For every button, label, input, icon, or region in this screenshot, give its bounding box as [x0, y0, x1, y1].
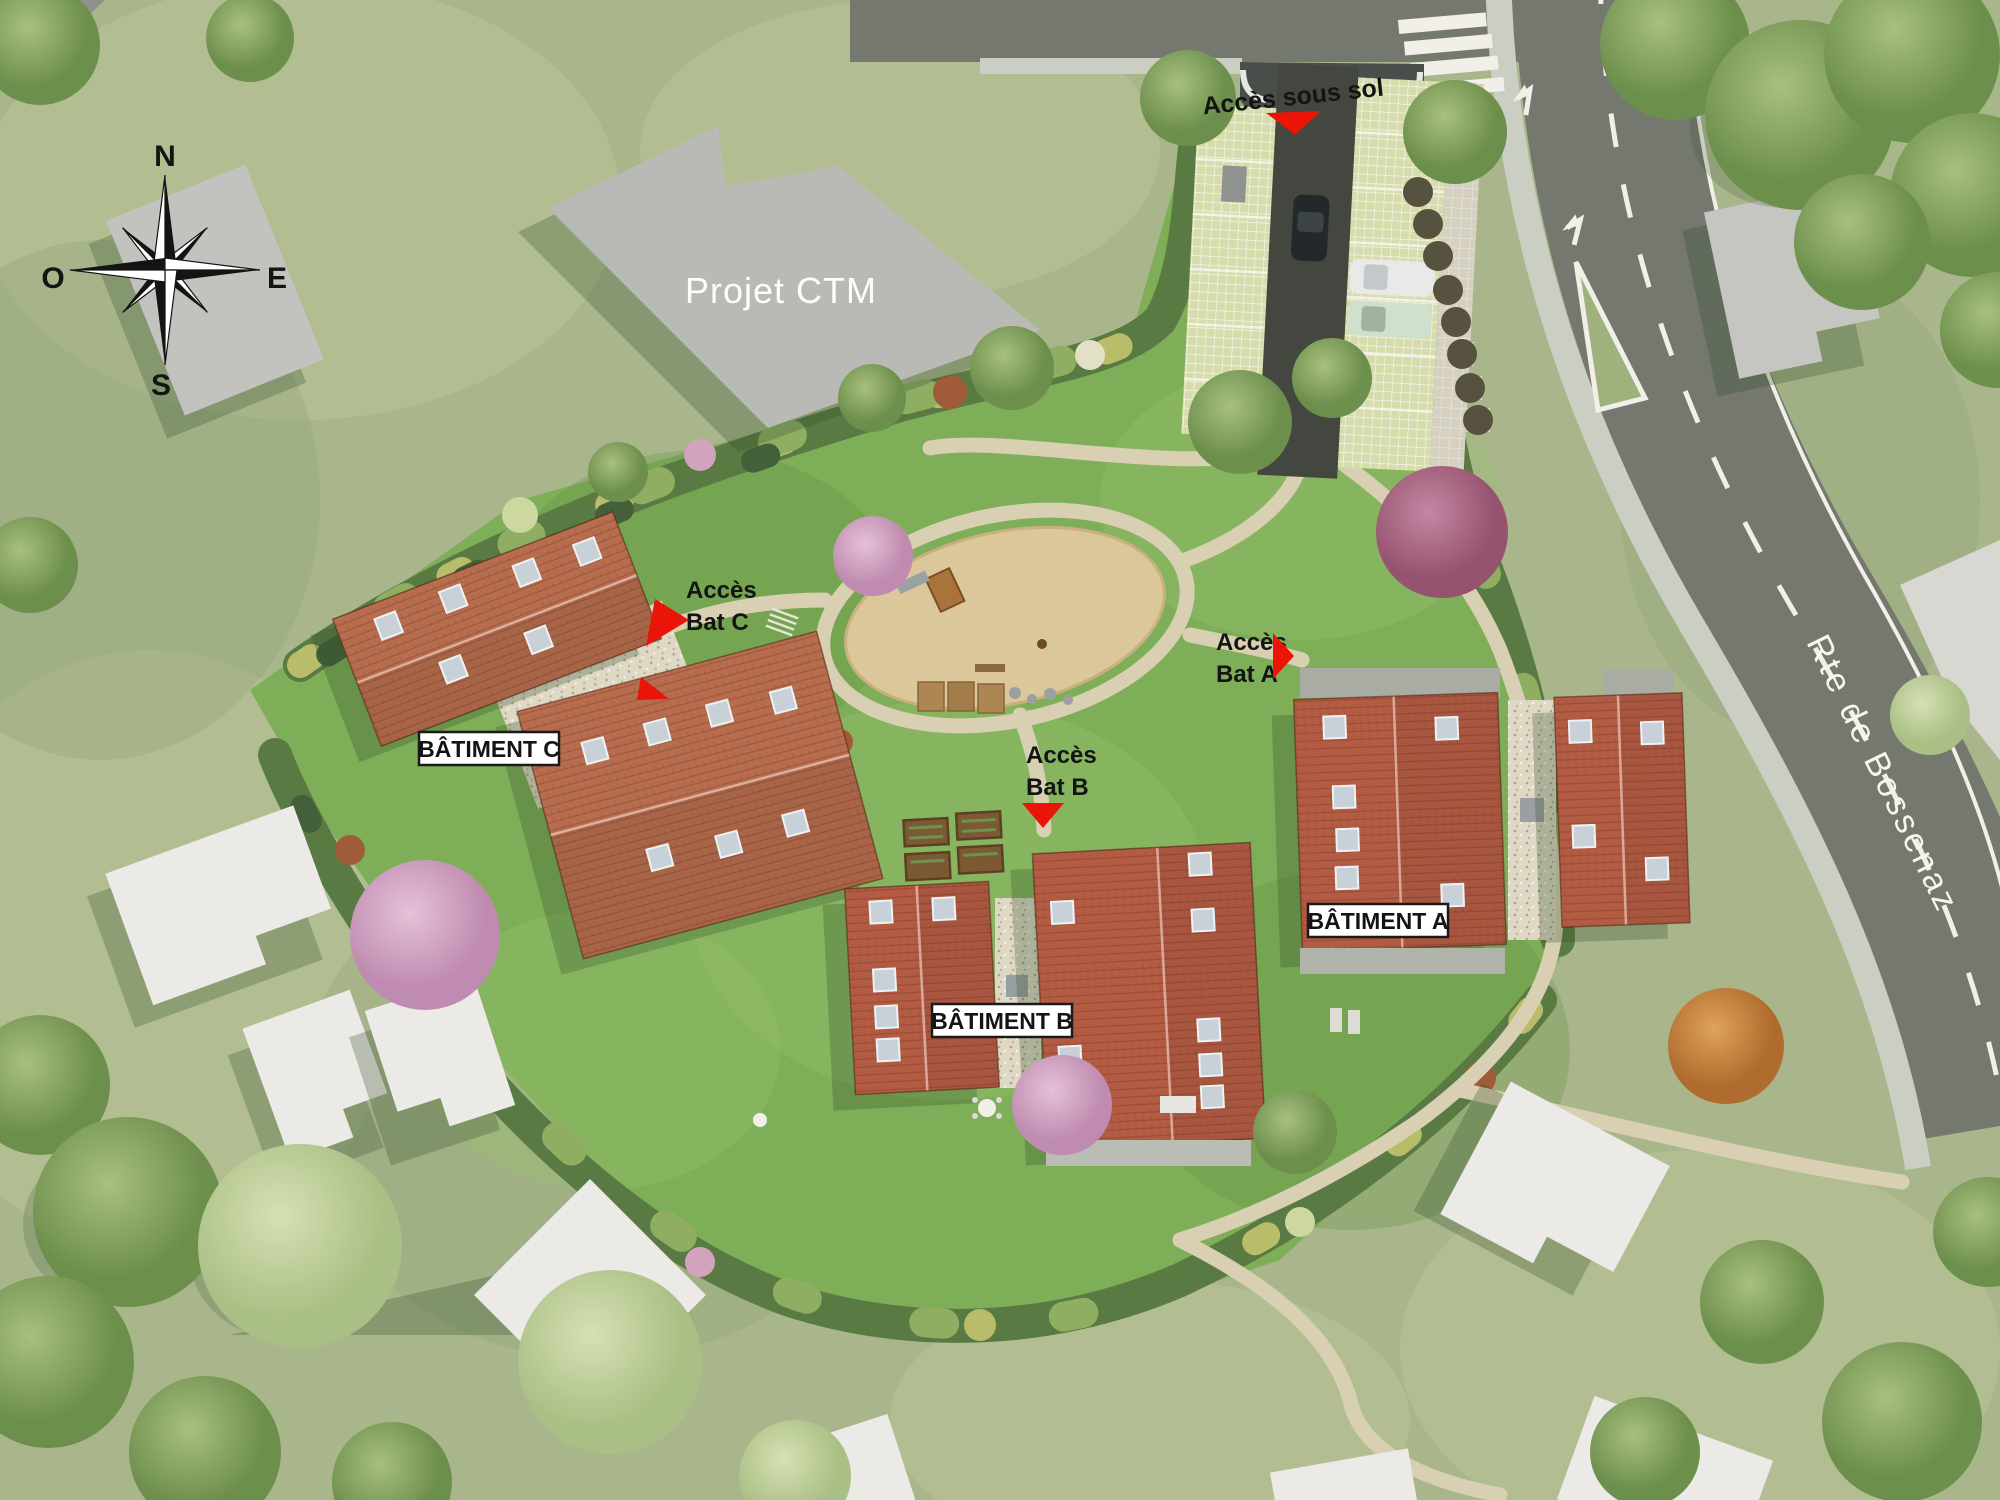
pink-tree	[1012, 1055, 1112, 1155]
compass-east-label: E	[267, 262, 287, 295]
acces-bat-b-line2: Bat B	[1026, 774, 1089, 801]
acces-bat-a-line2: Bat A	[1216, 661, 1278, 688]
svg-text:BÂTIMENT A: BÂTIMENT A	[1308, 907, 1449, 934]
compass-west-label: O	[41, 262, 64, 295]
svg-text:BÂTIMENT B: BÂTIMENT B	[931, 1007, 1073, 1034]
compass-north-label: N	[154, 140, 176, 173]
shed	[1221, 165, 1247, 202]
car-white	[1349, 258, 1435, 297]
batiment-b-left-block	[845, 881, 1000, 1094]
car-dark	[1290, 194, 1329, 262]
wood-decks	[918, 682, 1004, 713]
site-plan-canvas: Projet CTM	[0, 0, 2000, 1500]
site-plan: Projet CTM	[0, 0, 2000, 1500]
batiment-a-label: BÂTIMENT A	[1308, 904, 1449, 937]
acces-bat-b-line1: Accès	[1026, 742, 1097, 769]
pink-tree	[833, 516, 913, 596]
batiment-c-label: BÂTIMENT C	[418, 732, 560, 765]
terrace-a-bottom	[1300, 948, 1505, 974]
car-green	[1347, 300, 1433, 339]
batiment-a-right-block	[1554, 693, 1690, 927]
terrace-a-top-right	[1604, 670, 1674, 696]
projet-ctm-label: Projet CTM	[685, 270, 877, 311]
bench	[975, 664, 1005, 672]
purple-tree	[1376, 466, 1508, 598]
acces-bat-c-line1: Accès	[686, 577, 757, 604]
svg-text:BÂTIMENT C: BÂTIMENT C	[418, 735, 560, 762]
acces-bat-c-line2: Bat C	[686, 609, 749, 636]
batiment-b-label: BÂTIMENT B	[931, 1004, 1073, 1037]
autumn-tree	[1668, 988, 1784, 1104]
pink-tree	[350, 860, 500, 1010]
compass-south-label: S	[151, 369, 171, 402]
